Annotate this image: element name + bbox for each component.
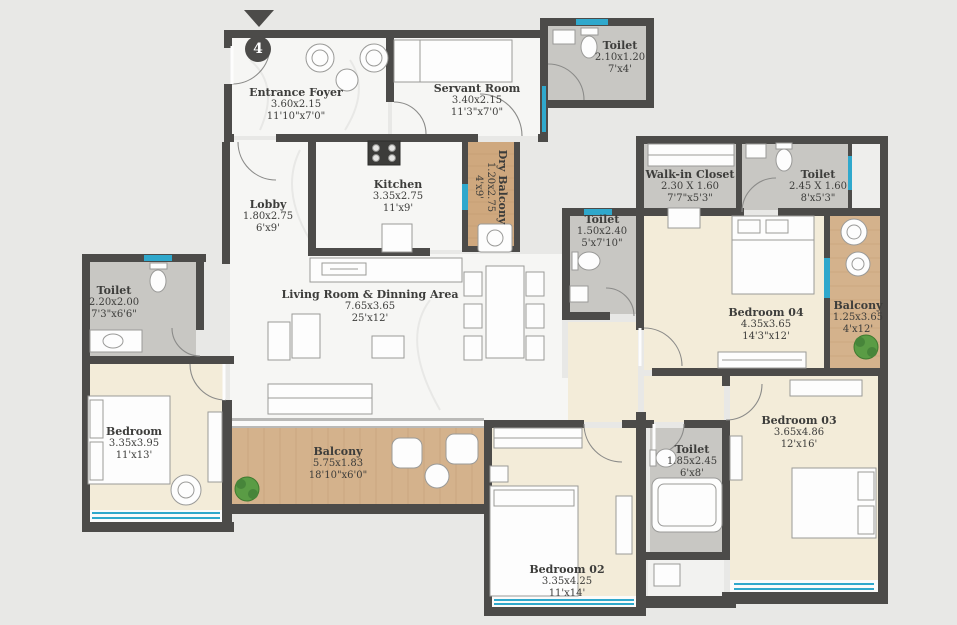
room-label-toilet-bed03: Toilet 1.85x2.45 6'x8' [667, 444, 717, 480]
room-label-lobby: Lobby 1.80x2.75 6'x9' [243, 199, 293, 235]
room-label-toilet-bed04: Toilet 2.45 X 1.60 8'x5'3" [789, 169, 847, 205]
floor-plan: 4 Entrance Foyer 3.60x2.15 11'10"x7'0" S… [0, 0, 957, 625]
room-label-dry-balcony: Dry Balcony 1.20x2.75 4'x9' [472, 150, 508, 225]
room-label-servant-room: Servant Room 3.40x2.15 11'3"x7'0" [434, 83, 521, 119]
room-label-toilet-left: Toilet 2.20x2.00 7'3"x6'6" [89, 285, 139, 321]
room-label-bedroom-02: Bedroom 02 3.35x4.25 11'x14' [529, 564, 604, 600]
room-label-living-dining: Living Room & Dinning Area 7.65x3.65 25'… [282, 289, 459, 325]
room-label-bedroom-03: Bedroom 03 3.65x4.86 12'x16' [761, 415, 836, 451]
unit-number-badge: 4 [245, 36, 271, 62]
room-label-balcony-main: Balcony 5.75x1.83 18'10"x6'0" [309, 446, 368, 482]
room-label-bedroom-left: Bedroom 3.35x3.95 11'x13' [106, 426, 162, 462]
balcony-slider [232, 418, 484, 428]
room-label-entrance-foyer: Entrance Foyer 3.60x2.15 11'10"x7'0" [249, 87, 343, 123]
room-label-kitchen: Kitchen 3.35x2.75 11'x9' [373, 179, 423, 215]
room-label-bedroom-04: Bedroom 04 4.35x3.65 14'3"x12' [728, 307, 803, 343]
room-label-toilet-top: Toilet 2.10x1.20 7'x4' [595, 40, 645, 76]
room-label-toilet-mid: Toilet 1.50x2.40 5'x7'10" [577, 214, 627, 250]
room-label-balcony-right: Balcony 1.25x3.65 4'x12' [833, 300, 883, 336]
entry-arrow-icon [244, 10, 274, 27]
room-label-walk-in-closet: Walk-in Closet 2.30 X 1.60 7'7"x5'3" [646, 169, 735, 205]
